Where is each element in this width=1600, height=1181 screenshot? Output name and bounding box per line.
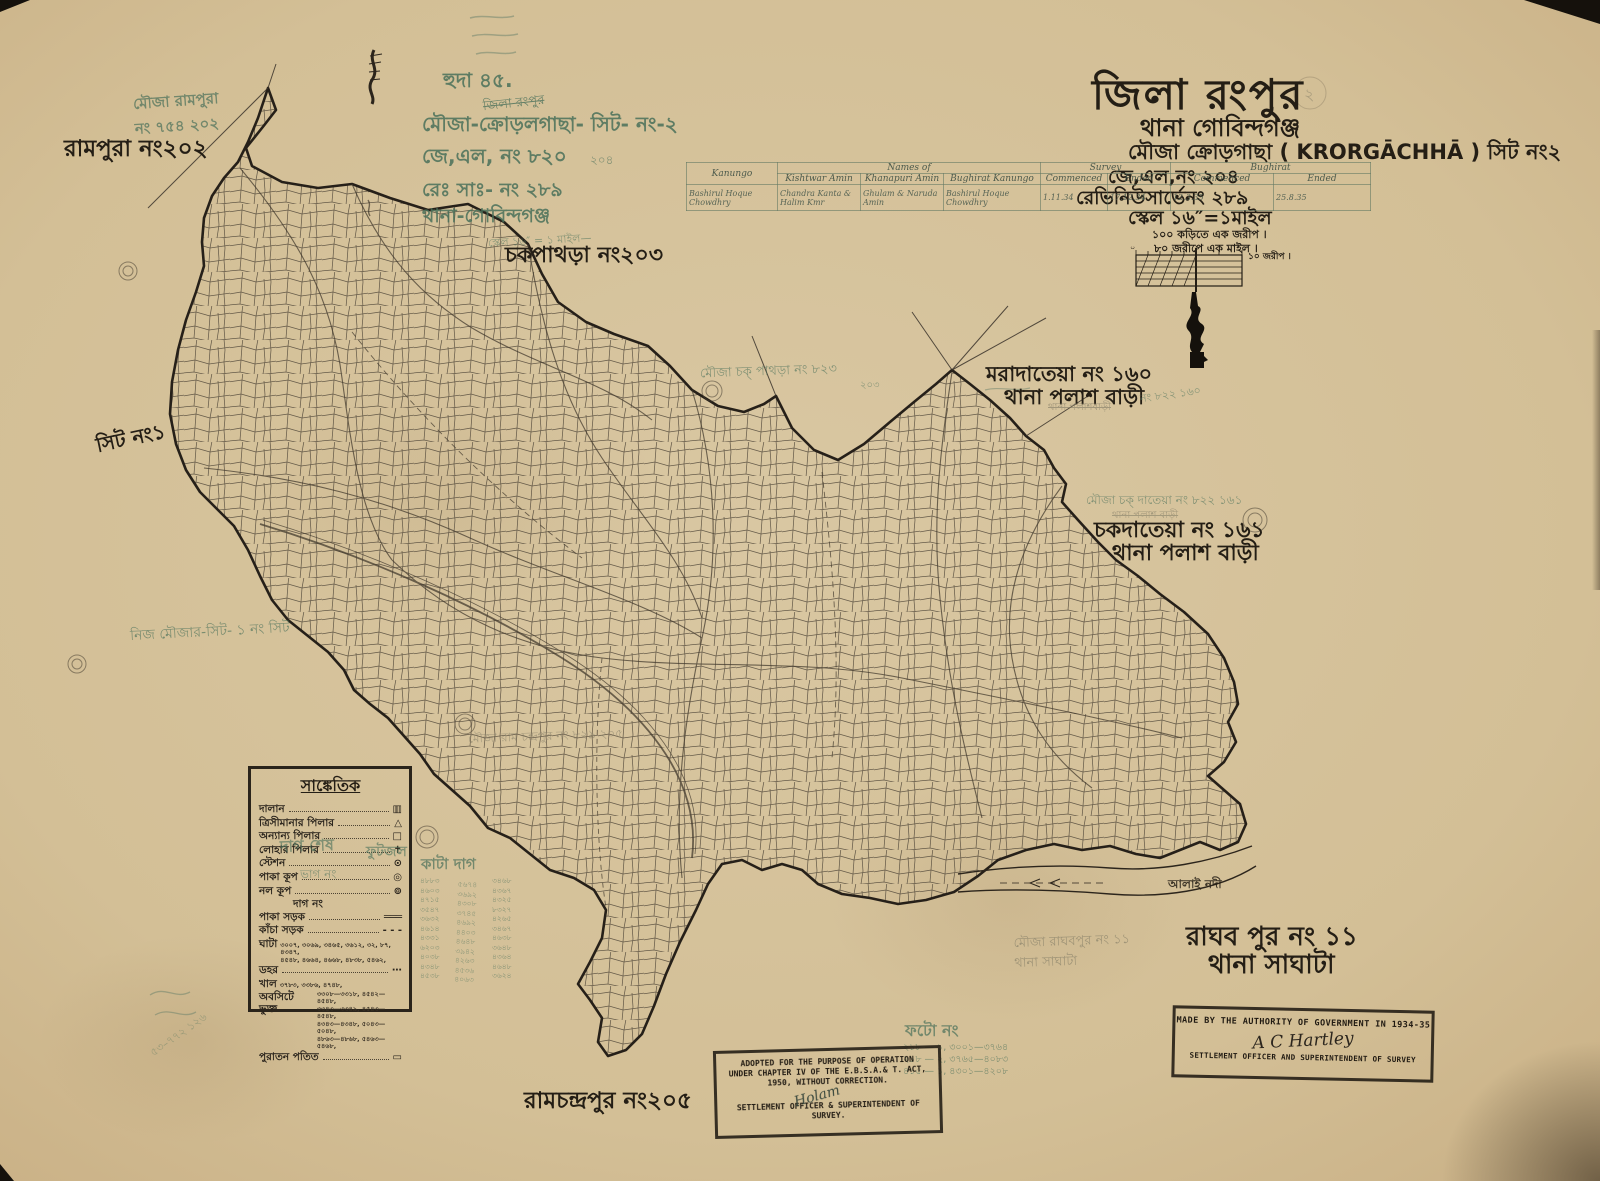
label-alai-river: আলাই নদী xyxy=(1168,876,1222,896)
legend-label: অবসিটে ভুক্ত xyxy=(259,991,314,1016)
label-chakpathra: চকপাথড়া নং২০৩ xyxy=(505,238,663,275)
legend-label: কাঁচা সড়ক xyxy=(259,924,304,937)
table-entry: Bashirul Hoque Chowdhry xyxy=(687,185,778,211)
table-entry: Ghulam & Naruda Amin xyxy=(861,185,944,211)
unmetalled-road-symbol: ‐ ‐ ‐ xyxy=(383,925,402,938)
trijunction-pillar-symbol: △ xyxy=(394,818,402,831)
label-chakdateya-2: থানা পলাশ বাড়ী xyxy=(1112,536,1259,573)
label-rampura: রামপুরা নং২০২ xyxy=(64,130,208,169)
table-subcol: Ended xyxy=(1274,174,1371,185)
label-raghabpur-2: থানা সাঘাটা xyxy=(1208,944,1335,988)
legend-plot-numbers: ৩৩০৮—৩৩১৮, ৪৫৪২—৪৫৪৮, ৩৩৪৩—৩৩৪৯, ৪৫৪৩—৪৫… xyxy=(317,991,402,1051)
table-entry: 1.11.34 xyxy=(1041,185,1108,211)
legend-label: ত্রিসীমানার পিলার xyxy=(259,817,334,830)
leader-dots xyxy=(282,972,388,973)
legend-label: দালান xyxy=(259,803,285,816)
maradateya-pencil-struck: থানা পলাশবাড়ী xyxy=(1048,400,1111,417)
old-fallow-symbol: ▭ xyxy=(393,1052,402,1065)
legend-box: সাঙ্কেতিক দালান▥ ত্রিসীমানার পিলার△ অন্য… xyxy=(248,766,412,1012)
table-subcol: Ended xyxy=(1108,174,1171,185)
building-symbol: ▥ xyxy=(393,804,402,817)
kata-dag-column: ৪৮৮৩ ৪৬০৩ ৪৭১৫ ৩৫৪৭ ৩৬৩২ ৪৬১৪ ৪৩৩১ ৬২০৩ … xyxy=(420,876,440,981)
tube-well-symbol: ⊚ xyxy=(394,886,402,899)
table-col-right-block: Bughirat xyxy=(1171,163,1371,174)
legend-label: পুরাতন পতিত xyxy=(259,1051,319,1064)
kata-dag-column: ৩৪৬৮ ৪৩৬৭ ৪৩২৫ ৮৩২৭ ৪২৬৫ ৩৪৬৭ ৪৬৩৮ ৩৬৪৮ … xyxy=(492,876,512,981)
legend-row: পুরাতন পতিত▭ xyxy=(259,1051,402,1065)
legend-row: নল কূপ⊚ xyxy=(259,885,402,899)
table-subcol: Commenced xyxy=(1171,174,1274,185)
kata-dag-heading: কাটা দাগ xyxy=(421,853,476,878)
leader-dots xyxy=(309,919,380,920)
leader-dots xyxy=(295,893,389,894)
masonry-well-symbol: ◎ xyxy=(393,872,402,885)
table-subcol: Commenced xyxy=(1041,174,1108,185)
legend-label: নল কূপ xyxy=(259,885,291,898)
authority-stamp: MADE BY THE AUTHORITY OF GOVERNMENT IN 1… xyxy=(1171,1005,1434,1082)
legend-row: কাঁচা সড়ক‐ ‐ ‐ xyxy=(259,924,402,938)
table-subcol: Kishtwar Amin xyxy=(778,174,861,185)
legend-row: পাকা সড়ক═══ xyxy=(259,911,402,925)
adopted-stamp: ADOPTED FOR THE PURPOSE OF OPERATION UND… xyxy=(713,1045,943,1139)
legend-label: ডহর xyxy=(259,964,278,977)
jl-204-small-note: ২০৪ xyxy=(590,152,613,172)
legend-row: ডহর⋯ xyxy=(259,964,402,978)
legend-title: সাঙ্কেতিক xyxy=(259,773,402,800)
corner-shade-bottom-right xyxy=(1440,1040,1600,1181)
mouza-krorgachha-note: মৌজা-ক্রোড়লগাছা- সিট- নং-২ xyxy=(422,110,678,143)
legend-label: খাল xyxy=(259,978,277,991)
legend-label: পাকা কূপ xyxy=(259,871,298,884)
table-entry: Bashirul Hoque Chowdhry xyxy=(944,185,1041,211)
chak-pathra-pencil-small: ২০৩ xyxy=(860,378,880,395)
legend-row: খাল৩৭৮৩, ৩৩৮৬, ৪৭৪৮, xyxy=(259,978,402,991)
legend-row: দাগ নং xyxy=(293,898,402,911)
scale-bar-end-label: ১০ জরীপ । xyxy=(1248,249,1291,264)
legend-label: দাগ নং xyxy=(293,898,323,911)
table-entry: 12.3.35 xyxy=(1171,185,1274,211)
circled-page-number: ২ xyxy=(1304,82,1314,109)
metalled-road-symbol: ═══ xyxy=(384,912,402,925)
leader-dots xyxy=(289,811,389,812)
legend-plot-numbers: ৩৭৮৩, ৩৩৮৬, ৪৭৪৮, xyxy=(280,982,343,990)
leader-dots xyxy=(323,1059,389,1060)
legend-plot-numbers: ৩০০৭, ৩০৬৯, ৩৪৬৫, ৩৬১২, ৩২, ৮৭, ৪৩৪৭, ৪৫… xyxy=(280,942,402,965)
legend-label: ঘাটা xyxy=(259,938,277,951)
leader-dots xyxy=(338,825,390,826)
ink-blob-mark xyxy=(1186,292,1208,368)
legend-green-overwrite-1: দাগ শেষ xyxy=(280,832,335,861)
table-entry: Chandra Kanta & Halim Kmr xyxy=(778,185,861,211)
table-subcol: Khanapuri Amin xyxy=(861,174,944,185)
thana-gobindaganj-note: থানা-গোবিন্দগঞ্জ xyxy=(422,202,550,234)
table-col-names-of: Names of xyxy=(778,163,1041,174)
label-ramchandrapur: রামচন্দ্রপুর নং২০৫ xyxy=(524,1082,692,1121)
legend-row: দালান▥ xyxy=(259,803,402,817)
photo-number-heading: ফটো নং xyxy=(905,1018,959,1045)
dohor-symbol: ⋯ xyxy=(392,965,402,978)
huda-note: হুদা ৪৫. xyxy=(443,66,513,99)
legend-green-overwrite-2: ফুটজল xyxy=(366,840,407,864)
legend-label: পাকা সড়ক xyxy=(259,911,305,924)
legend-green-overwrite-3: ভাগ নং xyxy=(300,866,336,886)
leader-dots xyxy=(308,932,379,933)
table-col-kanungo: Kanungo xyxy=(687,163,778,185)
map-sheet: জিলা রংপুর থানা গোবিন্দগঞ্জ মৌজা ক্রোড়গ… xyxy=(0,0,1600,1181)
scale-bar-zero-label: ০ xyxy=(1130,242,1135,255)
table-entry: 25.8.35 xyxy=(1274,185,1371,211)
table-col-survey: Survey xyxy=(1041,163,1171,174)
edge-shade-right xyxy=(1592,330,1600,590)
legend-row: অবসিটে ভুক্ত৩৩০৮—৩৩১৮, ৪৫৪২—৪৫৪৮, ৩৩৪৩—৩… xyxy=(259,991,402,1051)
legend-row: ত্রিসীমানার পিলার△ xyxy=(259,817,402,831)
raghabpur-pencil: মৌজা রাঘবপুর নং ১১ থানা সাঘাটা xyxy=(1013,930,1131,974)
survey-record-table: Kanungo Names of Survey Bughirat Kishtwa… xyxy=(686,162,1371,211)
table-subcol: Bughirat Kanungo xyxy=(944,174,1041,185)
jl-820-note: জে,এল, নং ৮২০ xyxy=(422,142,567,175)
legend-row: ঘাটা৩০০৭, ৩০৬৯, ৩৪৬৫, ৩৬১২, ৩২, ৮৭, ৪৩৪৭… xyxy=(259,938,402,965)
kata-dag-column: ৫৬৭৪ ৩৬৯২ ৪৩০৮ ৩৭৪৫ ৪৬৯২ ৪৪০৩ ৪৬৪৮ ৩৯৪২ … xyxy=(454,880,477,985)
table-entry: 17.12.34 xyxy=(1108,185,1171,211)
scale-note-2: ৮০ জরীপে এক মাইল । xyxy=(1154,240,1258,259)
